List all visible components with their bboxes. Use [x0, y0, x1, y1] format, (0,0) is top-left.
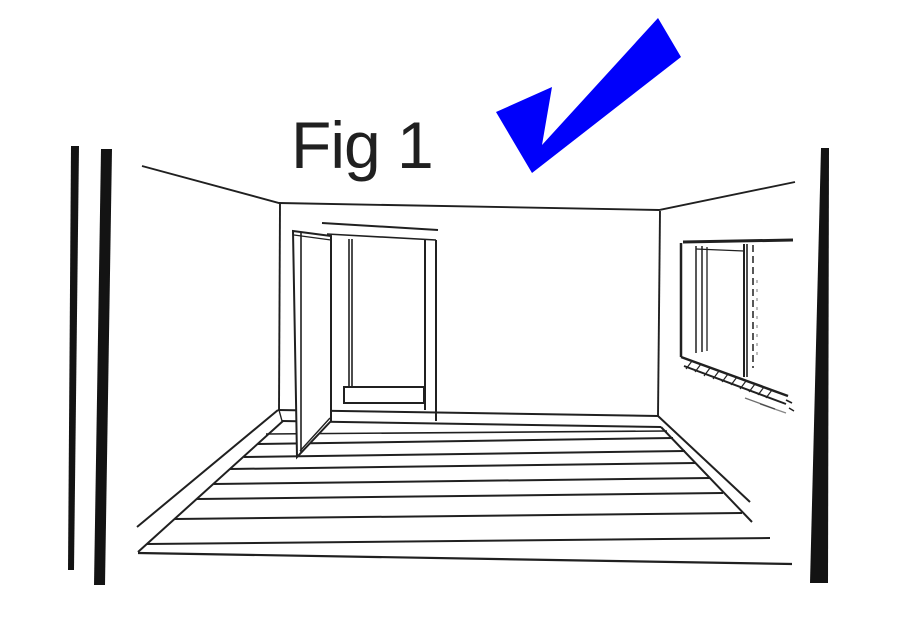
scanned-figure-page: Fig 1: [0, 0, 910, 618]
left-page-edge-bar-inner: [94, 149, 112, 585]
right-wall-corner: [658, 211, 660, 416]
room-perspective-drawing: Fig 1: [0, 0, 910, 618]
left-page-edge-bar-outer: [68, 146, 79, 570]
figure-label: Fig 1: [291, 108, 433, 182]
ceiling-edge: [142, 166, 795, 210]
blue-checkmark-icon: [496, 18, 681, 173]
floorboards: [138, 431, 792, 564]
open-door: [293, 231, 331, 457]
right-page-edge-bar: [810, 148, 829, 583]
doorway-step: [344, 387, 424, 403]
left-wall-corner: [279, 204, 280, 410]
walls-and-ceiling: [142, 166, 795, 416]
window-sill-hatching: [686, 361, 772, 398]
window-sill: [681, 357, 794, 413]
window: [681, 240, 793, 377]
door-frame: [322, 223, 438, 421]
